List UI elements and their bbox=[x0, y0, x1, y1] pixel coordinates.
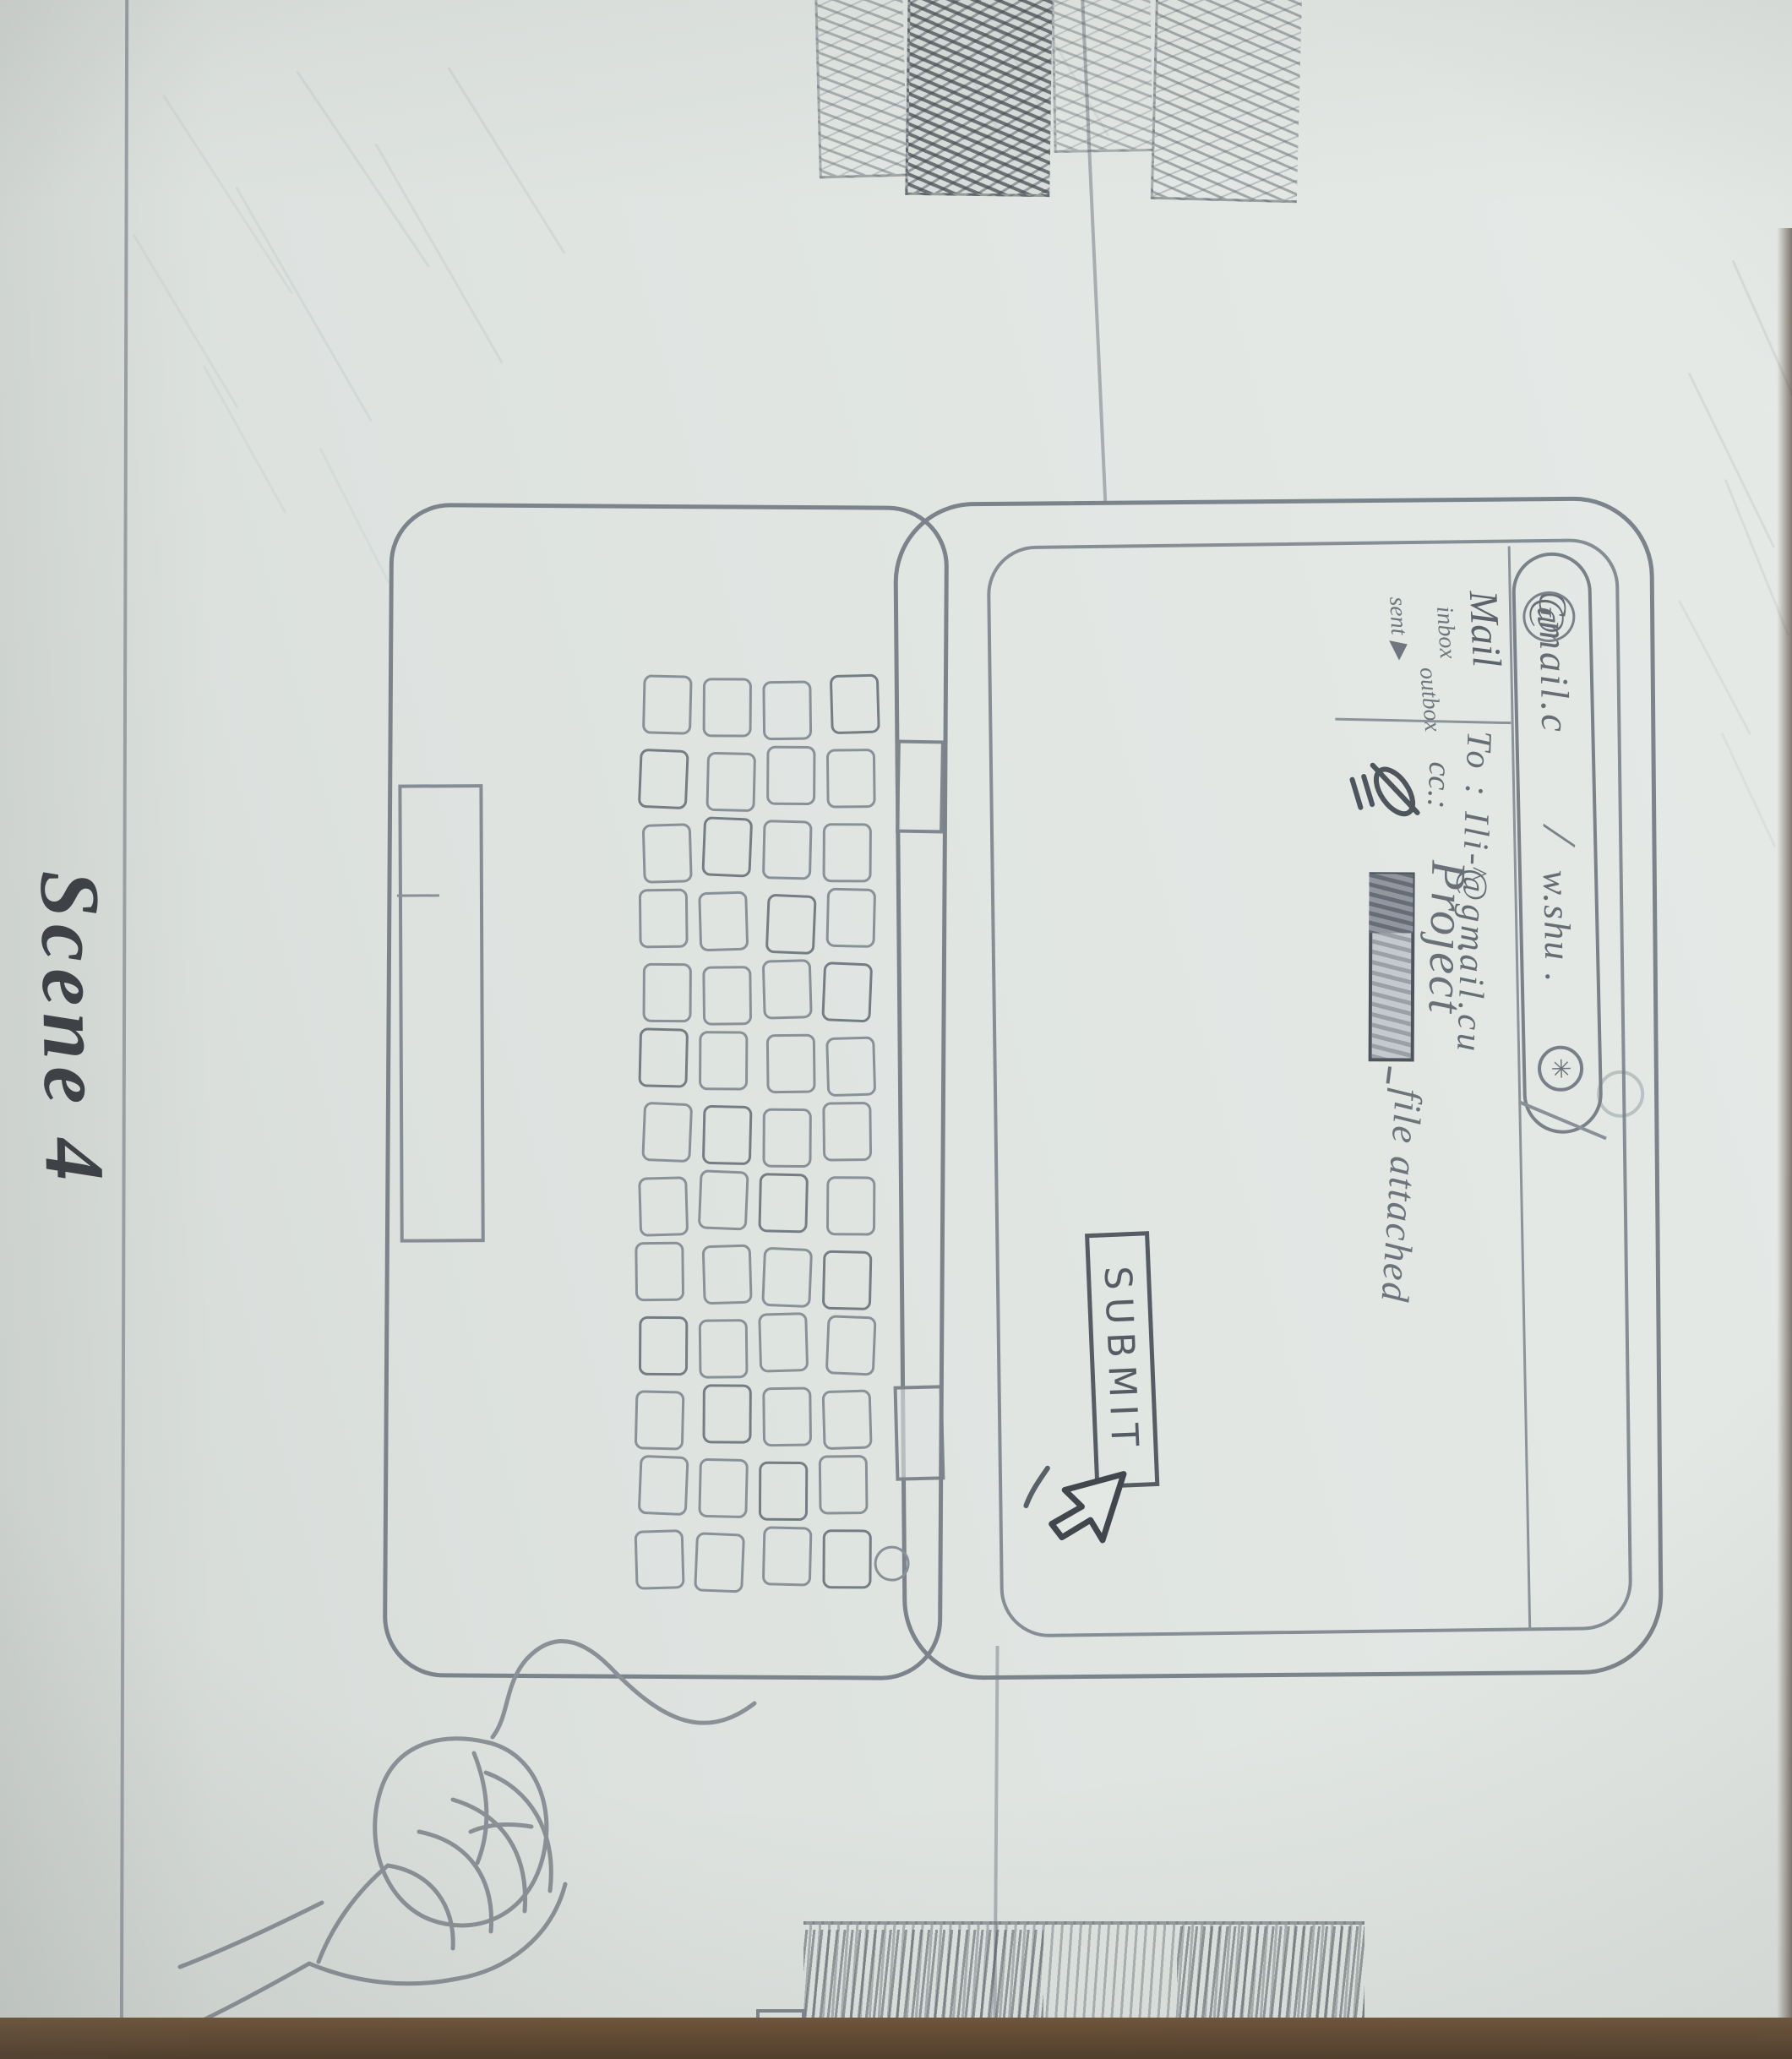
mouse-cord bbox=[493, 1642, 754, 1738]
table-edge-top bbox=[1777, 228, 1792, 2059]
hand-knuckles bbox=[457, 1884, 565, 1979]
sketch-canvas: Scene 4 Gmail.c@ / w.shu . ✳ bbox=[0, 0, 1792, 2059]
table-edge-right bbox=[0, 2018, 1792, 2059]
mouse-body bbox=[375, 1739, 547, 1926]
storyboard-photo: Scene 4 Gmail.c@ / w.shu . ✳ bbox=[0, 0, 1792, 2059]
hand-and-mouse-sketch bbox=[0, 0, 1792, 2059]
wrist bbox=[309, 1964, 457, 1984]
